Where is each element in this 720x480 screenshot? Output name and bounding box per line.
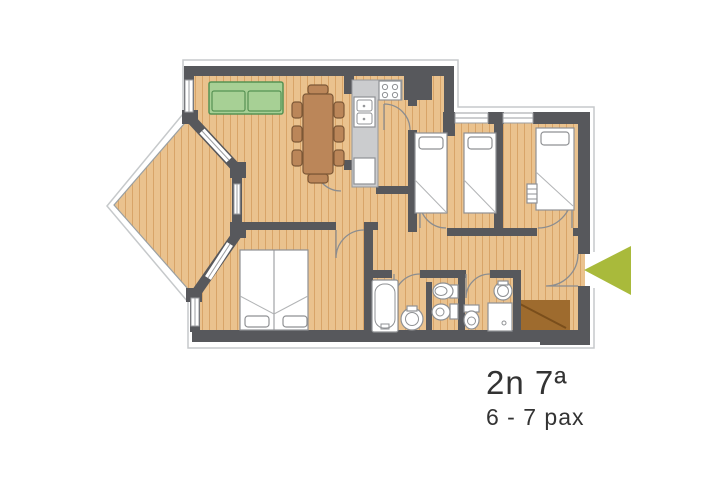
stove bbox=[379, 81, 401, 100]
floor-plan-page: 2n 7ª 6 - 7 pax bbox=[0, 0, 720, 480]
kitchen-sink bbox=[354, 97, 375, 127]
dining-table bbox=[303, 94, 333, 174]
dining-chair bbox=[292, 102, 302, 118]
capacity-label: 6 - 7 pax bbox=[486, 404, 585, 431]
sofa bbox=[209, 82, 283, 114]
toilet-1 bbox=[432, 304, 458, 320]
bed-single-3 bbox=[536, 128, 574, 210]
entry-mat bbox=[518, 300, 570, 331]
washbasin-2 bbox=[494, 281, 512, 300]
dining-chair bbox=[334, 126, 344, 142]
dining-chair bbox=[308, 174, 328, 183]
shower bbox=[488, 303, 512, 331]
dining-chair bbox=[334, 102, 344, 118]
unit-label: 2n 7ª bbox=[486, 364, 567, 402]
floor-plan-drawing bbox=[0, 0, 720, 480]
dining-chair bbox=[292, 150, 302, 166]
double-bed bbox=[240, 250, 308, 330]
bunk-ladder bbox=[527, 184, 537, 203]
toilet-2 bbox=[464, 305, 479, 329]
dining-chair bbox=[308, 85, 328, 94]
entrance-arrow-icon bbox=[584, 246, 631, 295]
dining-chair bbox=[334, 150, 344, 166]
bed-single-2 bbox=[464, 133, 496, 213]
kitchen-appliance bbox=[354, 158, 375, 184]
dining-chair bbox=[292, 126, 302, 142]
bed-single-1 bbox=[415, 133, 447, 213]
bidet bbox=[433, 283, 458, 299]
bathtub bbox=[372, 280, 398, 332]
